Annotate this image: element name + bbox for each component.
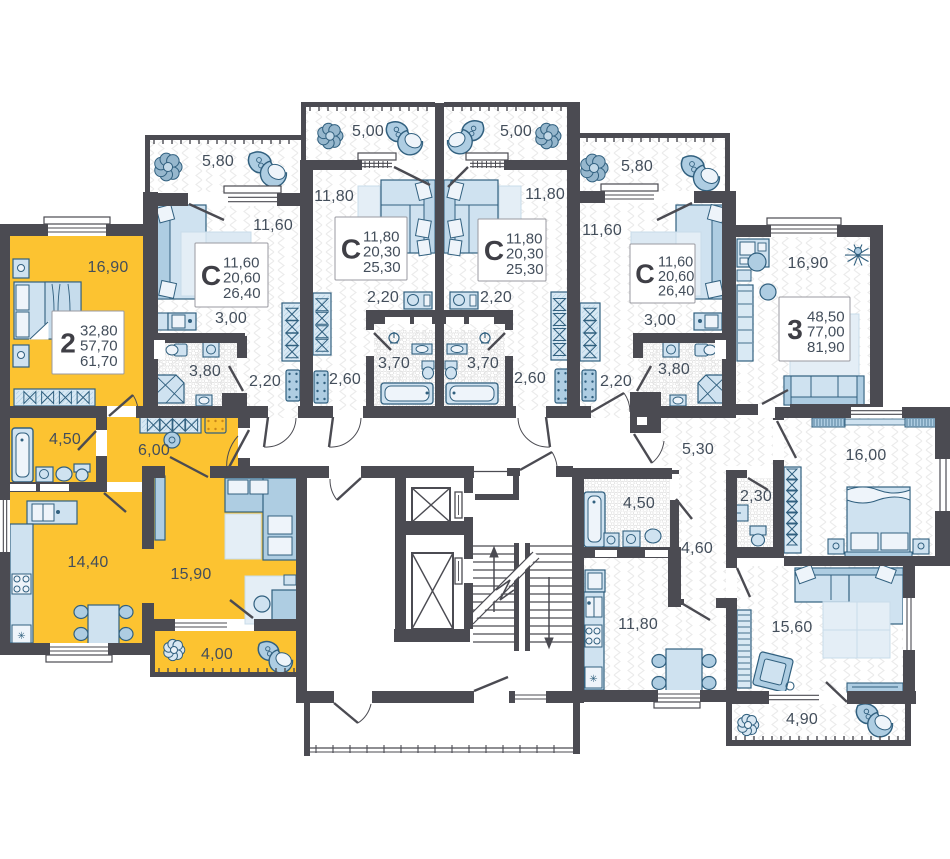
svg-text:26,40: 26,40 [658, 284, 694, 300]
svg-text:16,00: 16,00 [845, 447, 886, 464]
svg-text:С: С [201, 260, 221, 291]
svg-text:С: С [484, 235, 504, 266]
svg-text:3,70: 3,70 [378, 355, 410, 372]
svg-text:С: С [635, 259, 655, 289]
svg-text:3,80: 3,80 [189, 363, 221, 380]
svg-text:25,30: 25,30 [363, 259, 401, 276]
svg-text:5,30: 5,30 [682, 441, 714, 458]
svg-text:2,30: 2,30 [740, 488, 772, 505]
svg-text:11,80: 11,80 [618, 616, 658, 633]
svg-text:5,00: 5,00 [500, 123, 532, 140]
svg-text:11,80: 11,80 [525, 186, 565, 203]
svg-text:15,60: 15,60 [771, 619, 812, 636]
svg-text:81,90: 81,90 [807, 339, 845, 356]
svg-text:2,20: 2,20 [600, 373, 632, 390]
svg-text:2,20: 2,20 [367, 289, 399, 306]
svg-text:4,90: 4,90 [786, 711, 818, 728]
svg-text:6,00: 6,00 [138, 442, 170, 459]
svg-text:25,30: 25,30 [506, 261, 544, 278]
svg-text:3,70: 3,70 [467, 355, 499, 372]
svg-text:3: 3 [787, 314, 803, 345]
svg-text:16,90: 16,90 [87, 259, 128, 276]
svg-text:5,80: 5,80 [202, 153, 234, 170]
svg-text:✳: ✳ [17, 631, 25, 642]
svg-text:2,60: 2,60 [514, 370, 546, 387]
svg-text:11,60: 11,60 [658, 255, 693, 271]
svg-text:2,60: 2,60 [329, 371, 361, 388]
svg-text:11,80: 11,80 [314, 188, 354, 205]
svg-text:15,90: 15,90 [170, 566, 211, 583]
svg-text:3,00: 3,00 [644, 312, 676, 329]
svg-text:2: 2 [60, 328, 76, 359]
svg-text:4,00: 4,00 [201, 646, 233, 663]
svg-text:С: С [341, 234, 361, 265]
svg-text:5,80: 5,80 [621, 158, 653, 175]
svg-text:3,80: 3,80 [658, 361, 690, 378]
svg-text:4,50: 4,50 [623, 495, 655, 512]
svg-text:16,90: 16,90 [787, 255, 828, 272]
svg-text:2,20: 2,20 [480, 289, 512, 306]
svg-text:3,00: 3,00 [215, 310, 247, 327]
svg-text:11,60: 11,60 [582, 222, 622, 239]
svg-text:✳: ✳ [589, 674, 597, 685]
svg-text:4,60: 4,60 [681, 540, 713, 557]
svg-text:11,60: 11,60 [253, 217, 293, 234]
svg-text:4,50: 4,50 [49, 431, 81, 448]
svg-text:61,70: 61,70 [80, 353, 118, 370]
svg-text:2,20: 2,20 [249, 373, 281, 390]
svg-text:20,60: 20,60 [658, 269, 694, 285]
svg-text:26,40: 26,40 [223, 285, 261, 302]
svg-text:5,00: 5,00 [352, 123, 384, 140]
svg-text:14,40: 14,40 [67, 554, 108, 571]
